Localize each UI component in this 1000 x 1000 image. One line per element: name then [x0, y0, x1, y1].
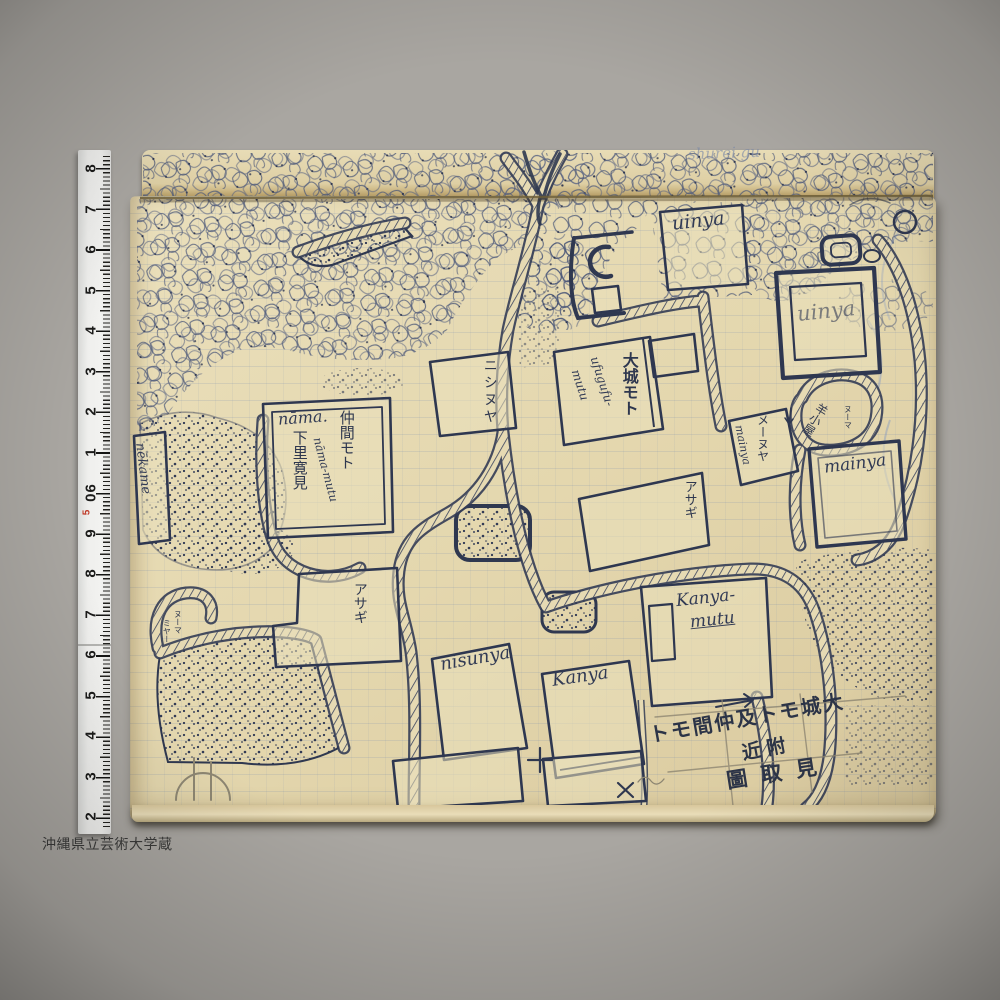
photo-background: shurei gu uinya uinya ニシヌヤ 大城モト ufugufu-… [0, 0, 1000, 1000]
ruler-number: 60 [83, 482, 100, 504]
ruler-number: 7 [83, 199, 100, 221]
page-bottom-edge [132, 805, 934, 822]
ruler-number: 7 [83, 604, 100, 626]
ruler-number: 2 [83, 401, 100, 423]
ruler-number: 3 [83, 766, 100, 788]
ruler-number: 2 [83, 806, 100, 828]
ruler-number-red: 5 [82, 502, 93, 524]
ruler-number: 4 [83, 725, 100, 747]
ruler-number: 8 [83, 563, 100, 585]
ruler-number: 4 [83, 320, 100, 342]
notebook-page [130, 196, 936, 820]
ruler-number: 8 [83, 158, 100, 180]
collection-credit: 沖縄県立芸術大学蔵 [42, 834, 173, 854]
ruler-number: 6 [83, 239, 100, 261]
notebook-page-top-edge [142, 150, 934, 198]
ruler-number: 5 [83, 280, 100, 302]
ruler-number: 9 [83, 523, 100, 545]
ruler-number: 3 [83, 361, 100, 383]
ruler-number: 5 [83, 685, 100, 707]
ruler-number: 1 [83, 442, 100, 464]
ruler-number: 6 [83, 644, 100, 666]
